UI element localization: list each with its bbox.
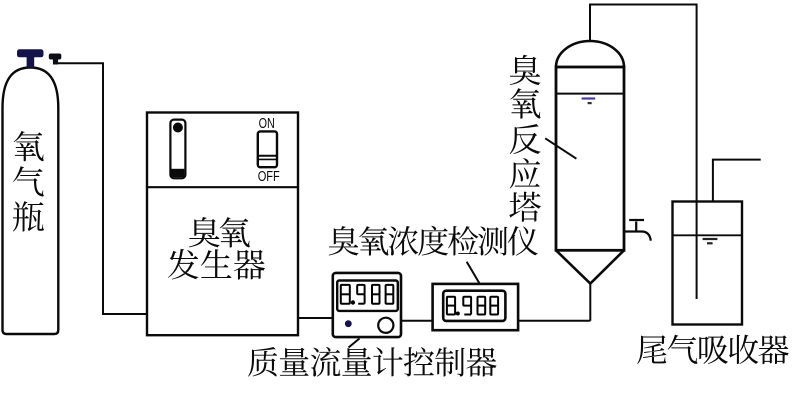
svg-text:OFF: OFF (258, 168, 280, 185)
svg-text:ON: ON (259, 116, 275, 132)
